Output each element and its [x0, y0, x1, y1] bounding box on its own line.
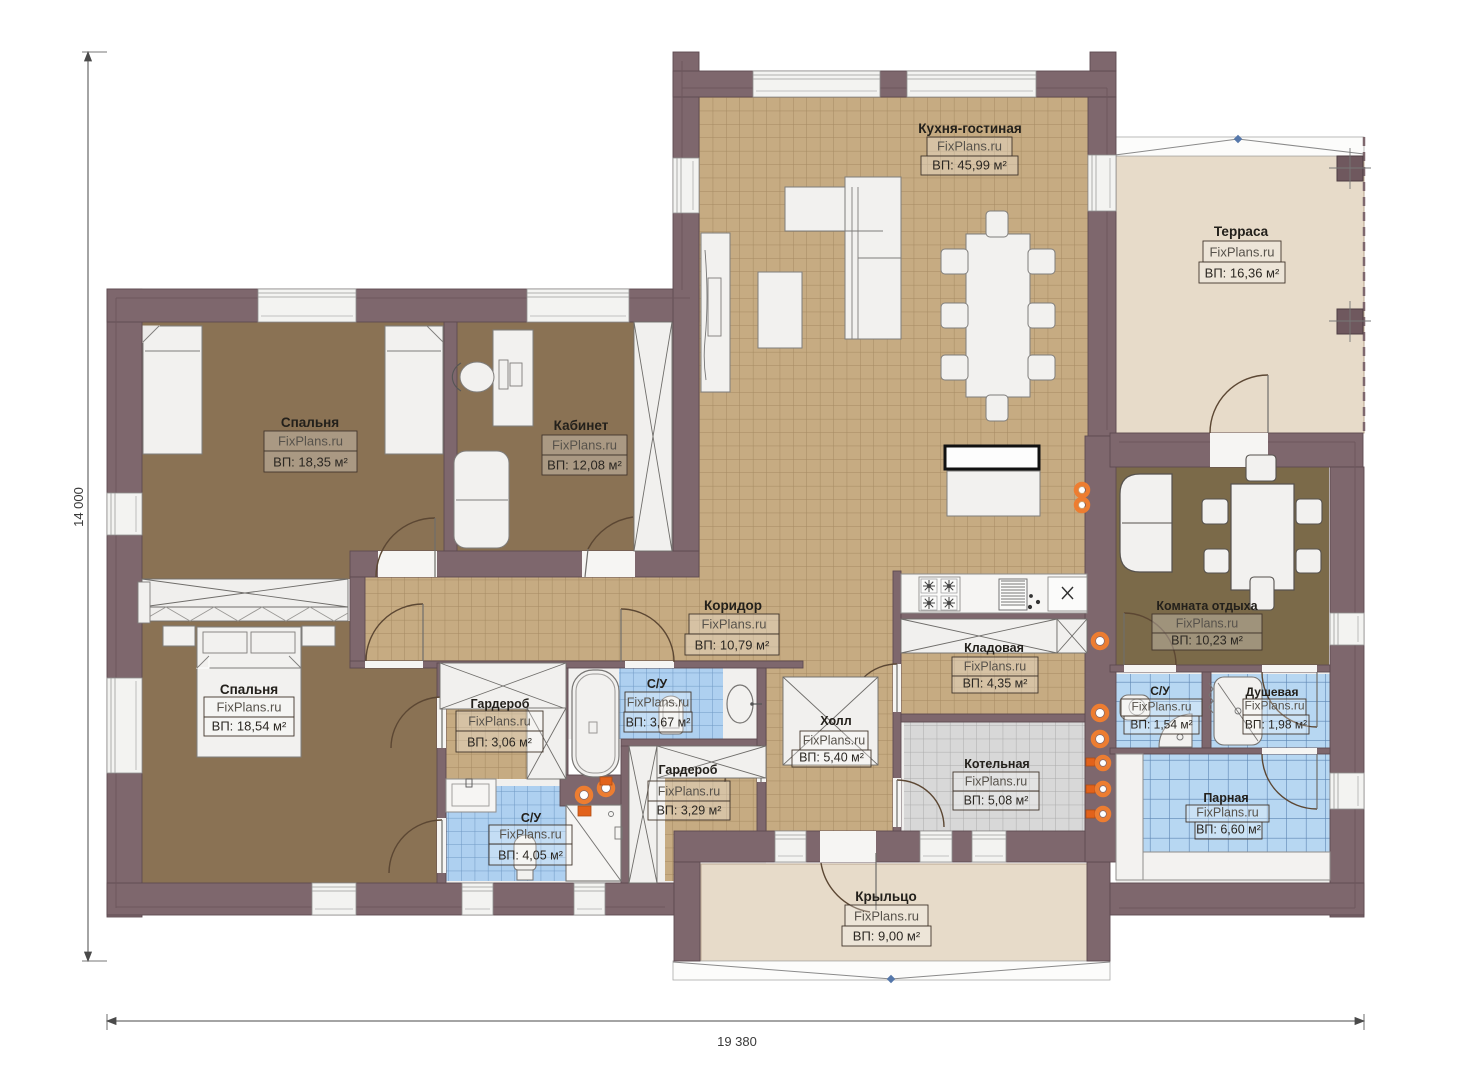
svg-text:С/У: С/У	[647, 677, 668, 691]
svg-text:FixPlans.ru: FixPlans.ru	[552, 438, 617, 453]
svg-text:С/У: С/У	[521, 811, 542, 825]
svg-text:ВП: 6,60 м²: ВП: 6,60 м²	[1196, 823, 1261, 837]
svg-text:ВП: 1,54 м²: ВП: 1,54 м²	[1130, 718, 1192, 732]
svg-text:Кухня-гостиная: Кухня-гостиная	[918, 121, 1021, 136]
svg-text:Холл: Холл	[820, 714, 851, 728]
svg-text:ВП: 10,23 м²: ВП: 10,23 м²	[1171, 634, 1243, 648]
svg-text:ВП: 12,08 м²: ВП: 12,08 м²	[547, 458, 622, 473]
svg-text:19 380: 19 380	[717, 1034, 757, 1049]
svg-text:Комната отдыха: Комната отдыха	[1156, 599, 1258, 613]
svg-text:FixPlans.ru: FixPlans.ru	[1209, 245, 1274, 260]
svg-text:ВП: 18,54 м²: ВП: 18,54 м²	[212, 719, 287, 734]
svg-text:FixPlans.ru: FixPlans.ru	[216, 700, 281, 715]
svg-text:Спальня: Спальня	[220, 682, 278, 697]
svg-text:ВП: 1,98 м²: ВП: 1,98 м²	[1245, 718, 1307, 732]
svg-text:ВП: 5,08 м²: ВП: 5,08 м²	[964, 794, 1029, 808]
svg-text:FixPlans.ru: FixPlans.ru	[701, 617, 766, 632]
svg-text:FixPlans.ru: FixPlans.ru	[1176, 617, 1239, 631]
svg-text:Гардероб: Гардероб	[658, 763, 717, 777]
svg-text:Душевая: Душевая	[1246, 685, 1299, 699]
svg-text:Котельная: Котельная	[964, 757, 1029, 771]
svg-text:ВП: 4,05 м²: ВП: 4,05 м²	[498, 849, 563, 863]
svg-text:FixPlans.ru: FixPlans.ru	[964, 660, 1027, 674]
svg-text:FixPlans.ru: FixPlans.ru	[1244, 699, 1304, 713]
svg-text:FixPlans.ru: FixPlans.ru	[803, 734, 866, 748]
svg-text:FixPlans.ru: FixPlans.ru	[627, 696, 690, 710]
svg-text:ВП: 10,79 м²: ВП: 10,79 м²	[695, 638, 770, 653]
svg-text:Спальня: Спальня	[281, 415, 339, 430]
svg-text:14 000: 14 000	[71, 487, 86, 527]
svg-text:FixPlans.ru: FixPlans.ru	[965, 775, 1028, 789]
svg-text:ВП: 18,35 м²: ВП: 18,35 м²	[273, 455, 348, 470]
svg-text:FixPlans.ru: FixPlans.ru	[658, 785, 721, 799]
svg-text:Терраса: Терраса	[1214, 224, 1269, 239]
svg-text:С/У: С/У	[1150, 684, 1170, 698]
svg-text:FixPlans.ru: FixPlans.ru	[278, 434, 343, 449]
svg-text:Кабинет: Кабинет	[554, 418, 609, 433]
svg-text:FixPlans.ru: FixPlans.ru	[937, 139, 1002, 154]
svg-text:FixPlans.ru: FixPlans.ru	[499, 828, 562, 842]
svg-text:ВП: 4,35 м²: ВП: 4,35 м²	[963, 677, 1028, 691]
svg-text:FixPlans.ru: FixPlans.ru	[1196, 806, 1259, 820]
svg-text:Гардероб: Гардероб	[470, 697, 529, 711]
svg-text:FixPlans.ru: FixPlans.ru	[1131, 700, 1191, 714]
svg-text:ВП: 5,40 м²: ВП: 5,40 м²	[799, 751, 864, 765]
svg-text:FixPlans.ru: FixPlans.ru	[854, 909, 919, 924]
svg-text:ВП: 3,67 м²: ВП: 3,67 м²	[626, 716, 691, 730]
svg-text:Коридор: Коридор	[704, 598, 762, 613]
svg-text:ВП: 3,29 м²: ВП: 3,29 м²	[657, 804, 722, 818]
svg-text:Кладовая: Кладовая	[964, 641, 1024, 655]
svg-text:Крыльцо: Крыльцо	[855, 889, 916, 904]
svg-text:Парная: Парная	[1203, 791, 1248, 805]
svg-text:ВП: 3,06 м²: ВП: 3,06 м²	[467, 736, 532, 750]
svg-text:ВП: 16,36 м²: ВП: 16,36 м²	[1205, 266, 1280, 281]
svg-text:FixPlans.ru: FixPlans.ru	[468, 715, 531, 729]
svg-text:ВП: 45,99 м²: ВП: 45,99 м²	[932, 158, 1007, 173]
svg-text:ВП: 9,00 м²: ВП: 9,00 м²	[853, 929, 921, 944]
